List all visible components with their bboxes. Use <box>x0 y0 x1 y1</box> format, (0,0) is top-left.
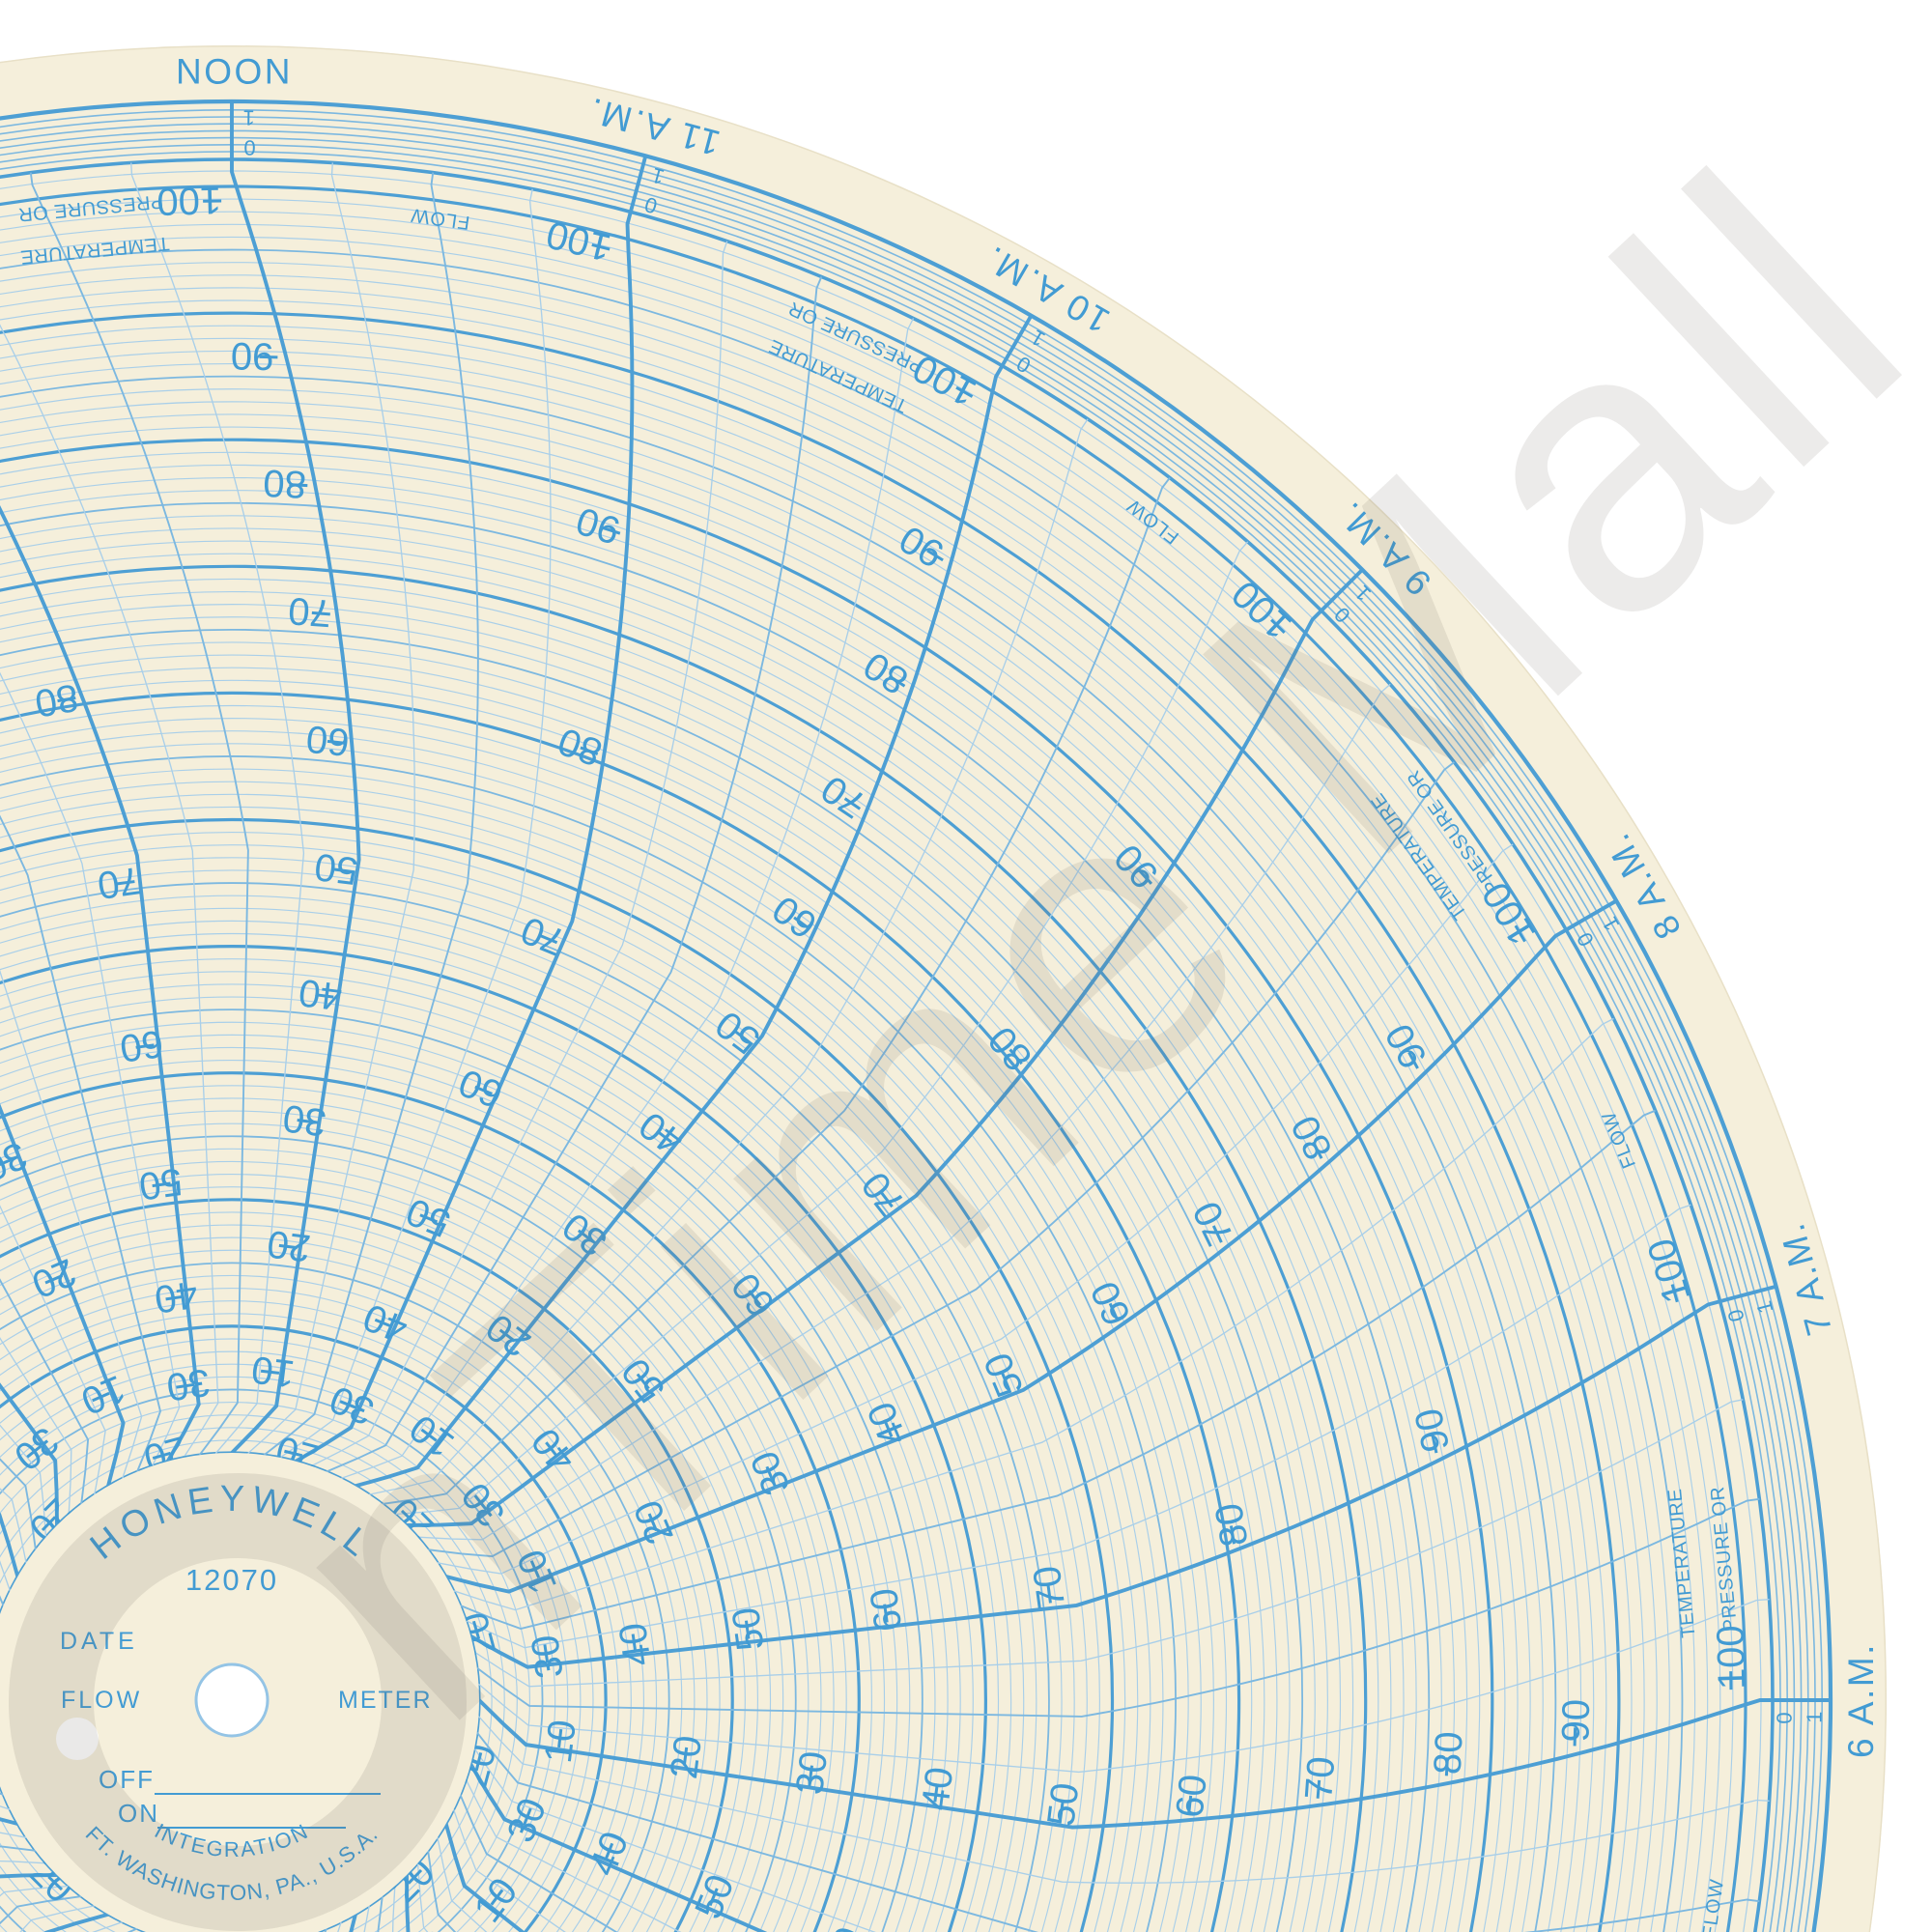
value-label-dash <box>259 356 277 357</box>
value-label-dash <box>1575 1727 1576 1746</box>
value-label-dash <box>1318 1780 1320 1799</box>
rim-tick-label: 0 <box>1773 1712 1797 1724</box>
rim-tick-label: 0 <box>243 135 256 159</box>
rim-tick-label: 1 <box>1803 1711 1827 1723</box>
part-number: 12070 <box>185 1563 278 1597</box>
chart-svg: 10203040506070809010010PRESSURE ORTEMPER… <box>0 0 1932 1932</box>
rim-tick-label: 1 <box>242 105 255 129</box>
value-label-dash <box>327 741 346 743</box>
hour-label: NOON <box>174 51 291 91</box>
scale-value-label: 80 <box>1427 1730 1471 1775</box>
scale-value-label: 70 <box>1297 1755 1343 1802</box>
value-label-dash <box>1189 1796 1191 1814</box>
scale-value-label: 80 <box>1207 1500 1257 1549</box>
chart-recorder-photo: 10203040506070809010010PRESSURE ORTEMPER… <box>0 0 1932 1932</box>
scale-value-label: 70 <box>287 589 333 635</box>
value-label-dash <box>1446 1757 1447 1776</box>
hour-label: 6 A.M. <box>1841 1642 1881 1758</box>
center-hole <box>196 1664 268 1736</box>
value-label-dash <box>312 612 330 614</box>
scale-value-label: 80 <box>262 461 306 505</box>
value-label-dash <box>289 485 307 486</box>
scale-value-label: 80 <box>32 675 81 724</box>
